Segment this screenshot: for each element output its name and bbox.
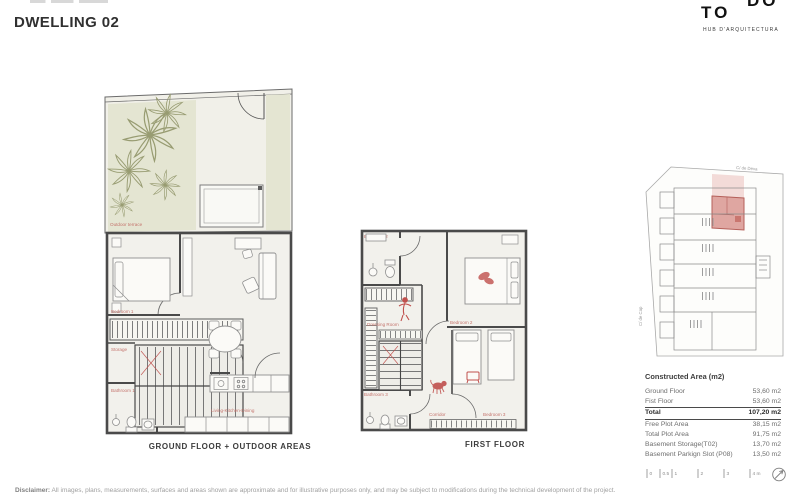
room-label-bedroom1: Bedroom 1: [111, 309, 134, 314]
row-value: 53,60 m2: [753, 397, 781, 407]
site-location-plan: C/ de Déva C/ de Cap: [638, 158, 800, 372]
north-arrow-icon: [773, 468, 786, 481]
row-label: Free Plot Area: [645, 420, 688, 430]
kitchen-units: [185, 417, 289, 432]
area-table: Constructed Area (m2) Ground Floor 53,60…: [645, 372, 781, 460]
presentation-sheet: DWELLING 02 DO TO HUB D'ARQUITECTURA: [0, 0, 800, 500]
disclaimer-text: All images, plans, measurements, surface…: [50, 487, 615, 494]
table-row: Basement Parkign Slot (P08) 13,50 m2: [645, 450, 781, 460]
nightstand: [112, 238, 121, 247]
shelf-unit: [183, 238, 192, 296]
scale-bar: 0 0.5 1 2 3 4 m: [643, 466, 798, 488]
row-label: Basement Parkign Slot (P08): [645, 450, 733, 460]
row-value: 107,20 m2: [748, 408, 781, 418]
street-label-left: C/ de Cap: [638, 306, 643, 326]
row-value: 91,75 m2: [753, 430, 781, 440]
row-value: 13,50 m2: [753, 450, 781, 460]
scale-tick: 4 m: [753, 471, 761, 477]
room-label-terrace: Outdoor terrace: [110, 222, 143, 227]
scale-tick: 3: [727, 471, 730, 477]
highlighted-unit: [712, 196, 744, 230]
table-row-total: Total 107,20 m2: [645, 407, 781, 419]
room-label-corridor: Corridor: [429, 412, 446, 417]
table-row: Total Plot Area 91,75 m2: [645, 430, 781, 440]
scale-tick: 0: [650, 471, 653, 477]
row-value: 38,15 m2: [753, 420, 781, 430]
room-label-bedroom2: Bedroom 2: [450, 320, 473, 325]
highlight-extension: [712, 174, 744, 198]
staircase: [379, 341, 422, 390]
row-value: 53,60 m2: [753, 387, 781, 397]
row-value: 13,70 m2: [753, 440, 781, 450]
page-title: DWELLING 02: [14, 14, 119, 31]
dining-set: [209, 321, 241, 358]
sofa: [259, 253, 276, 299]
table-row: Basement Storage(T02) 13,70 m2: [645, 440, 781, 450]
scale-tick: 2: [701, 471, 704, 477]
highlight-detail: [735, 216, 741, 222]
room-label-bathroom3: Bathroom 3: [364, 392, 388, 397]
footer-disclaimer: Disclaimer: All images, plans, measureme…: [15, 487, 783, 499]
table-row: Free Plot Area 38,15 m2: [645, 420, 781, 430]
scale-tick: 1: [675, 471, 678, 477]
area-table-title: Constructed Area (m2): [645, 372, 781, 381]
room-label-storage: Storage: [111, 347, 128, 352]
ground-floor-plan: Outdoor terrace Bedroom 1: [95, 83, 305, 451]
row-label: Ground Floor: [645, 387, 685, 397]
street-label-top: C/ de Déva: [736, 165, 758, 172]
bed-double: [113, 258, 170, 301]
disclaimer-lead: Disclaimer:: [15, 487, 50, 494]
table-row: Fist Floor 53,60 m2: [645, 397, 781, 407]
studio-logo-tagline: HUB D'ARQUITECTURA: [703, 27, 779, 33]
kitchen-counter: [210, 373, 289, 392]
first-floor-caption: FIRST FLOOR: [445, 440, 545, 449]
outdoor-terrace: Outdoor terrace: [101, 89, 292, 233]
row-label: Total Plot Area: [645, 430, 689, 440]
row-label: Basement Storage(T02): [645, 440, 718, 450]
row-label: Total: [645, 408, 661, 418]
first-floor-plan: Bathroom 2 Bedroom 2: [352, 224, 534, 436]
studio-logo-line1: DO: [747, 0, 779, 11]
room-label-dressing: Dressing Room: [367, 322, 399, 327]
room-label-bedroom3: Bedroom 3: [483, 412, 506, 417]
room-label-living: Living-Kitchen-Dining: [211, 408, 255, 413]
scale-tick: 0.5: [663, 471, 670, 477]
room-label-bathroom1: Bathroom 1: [111, 388, 135, 393]
cropped-header-fragment: [30, 0, 108, 3]
ground-floor-caption: GROUND FLOOR + OUTDOOR AREAS: [140, 442, 320, 451]
row-label: Fist Floor: [645, 397, 673, 407]
ground-floor-interior: Bedroom 1 Storage Bathroom 1: [107, 233, 291, 433]
table-row: Ground Floor 53,60 m2: [645, 387, 781, 397]
bench: [502, 235, 518, 244]
studio-logo-line2: TO: [701, 3, 730, 23]
wardrobe: [430, 420, 516, 429]
